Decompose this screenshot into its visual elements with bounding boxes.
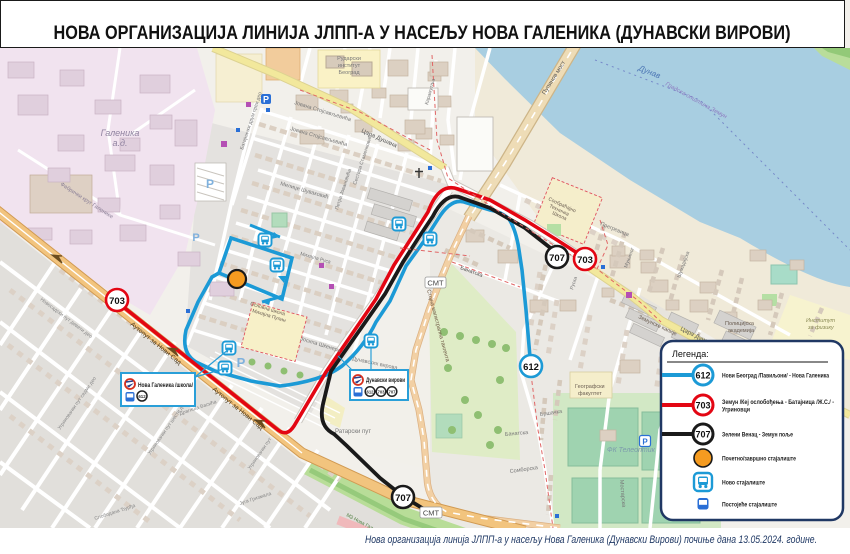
svg-text:Ратарски пут: Ратарски пут [335, 429, 371, 435]
svg-text:703: 703 [695, 401, 710, 411]
svg-text:Нова организација линија ЈЛПП-: Нова организација линија ЈЛПП-а у насељу… [365, 534, 817, 546]
svg-text:Постојеће стајалиште: Постојеће стајалиште [722, 502, 778, 509]
svg-text:академија: академија [728, 328, 755, 334]
svg-text:707: 707 [695, 430, 710, 440]
svg-text:Угриновци: Угриновци [722, 408, 750, 414]
svg-text:Географски: Географски [575, 384, 605, 390]
svg-text:Београд: Београд [338, 70, 360, 76]
svg-text:Зелени Венац - Земун поље: Зелени Венац - Земун поље [722, 433, 794, 439]
svg-text:Ново стајалиште: Ново стајалиште [722, 481, 766, 487]
svg-text:P: P [237, 355, 246, 370]
svg-text:Почетно/завршно стајалиште: Почетно/завршно стајалиште [722, 457, 797, 463]
svg-text:703: 703 [378, 390, 386, 395]
svg-text:Полицијска: Полицијска [725, 321, 755, 327]
svg-text:институт: институт [338, 63, 361, 69]
svg-text:P: P [192, 232, 199, 244]
svg-text:Институт: Институт [806, 318, 836, 324]
svg-text:P: P [642, 438, 648, 447]
svg-text:P: P [206, 177, 214, 191]
svg-text:Легенда:: Легенда: [672, 349, 709, 359]
svg-text:Земун /Кеј ослобођења - Батајн: Земун /Кеј ослобођења - Батајница /Ж.С./… [722, 399, 834, 406]
svg-text:703: 703 [577, 255, 593, 266]
svg-text:612: 612 [523, 362, 539, 373]
svg-text:612: 612 [695, 371, 710, 381]
svg-text:а.д.: а.д. [113, 138, 128, 148]
svg-text:707: 707 [389, 390, 397, 395]
svg-text:612: 612 [138, 394, 146, 399]
svg-text:707: 707 [395, 493, 411, 504]
svg-text:P: P [263, 95, 269, 105]
svg-text:703: 703 [109, 296, 125, 307]
svg-text:Галеника: Галеника [101, 128, 140, 138]
svg-text:НОВА ОРГАНИЗАЦИЈА ЛИНИЈА ЈЛПП-: НОВА ОРГАНИЗАЦИЈА ЛИНИЈА ЈЛПП-А У НАСЕЉУ… [54, 23, 791, 44]
svg-text:факултет: факултет [578, 391, 602, 397]
svg-text:Нова Галеника /школа/: Нова Галеника /школа/ [138, 382, 193, 389]
svg-text:Дунавски вирови: Дунавски вирови [366, 377, 405, 384]
svg-text:СМТ: СМТ [423, 509, 440, 518]
svg-text:за физику: за физику [807, 325, 835, 331]
svg-text:Рударски: Рударски [337, 56, 361, 62]
svg-text:707: 707 [549, 253, 565, 264]
svg-text:Нови Београд /Павиљони/ - Нова: Нови Београд /Павиљони/ - Нова Галеника [722, 374, 830, 380]
svg-text:СМТ: СМТ [427, 279, 444, 288]
svg-text:ФК Телеоптик: ФК Телеоптик [607, 447, 656, 454]
svg-text:612: 612 [367, 390, 375, 395]
